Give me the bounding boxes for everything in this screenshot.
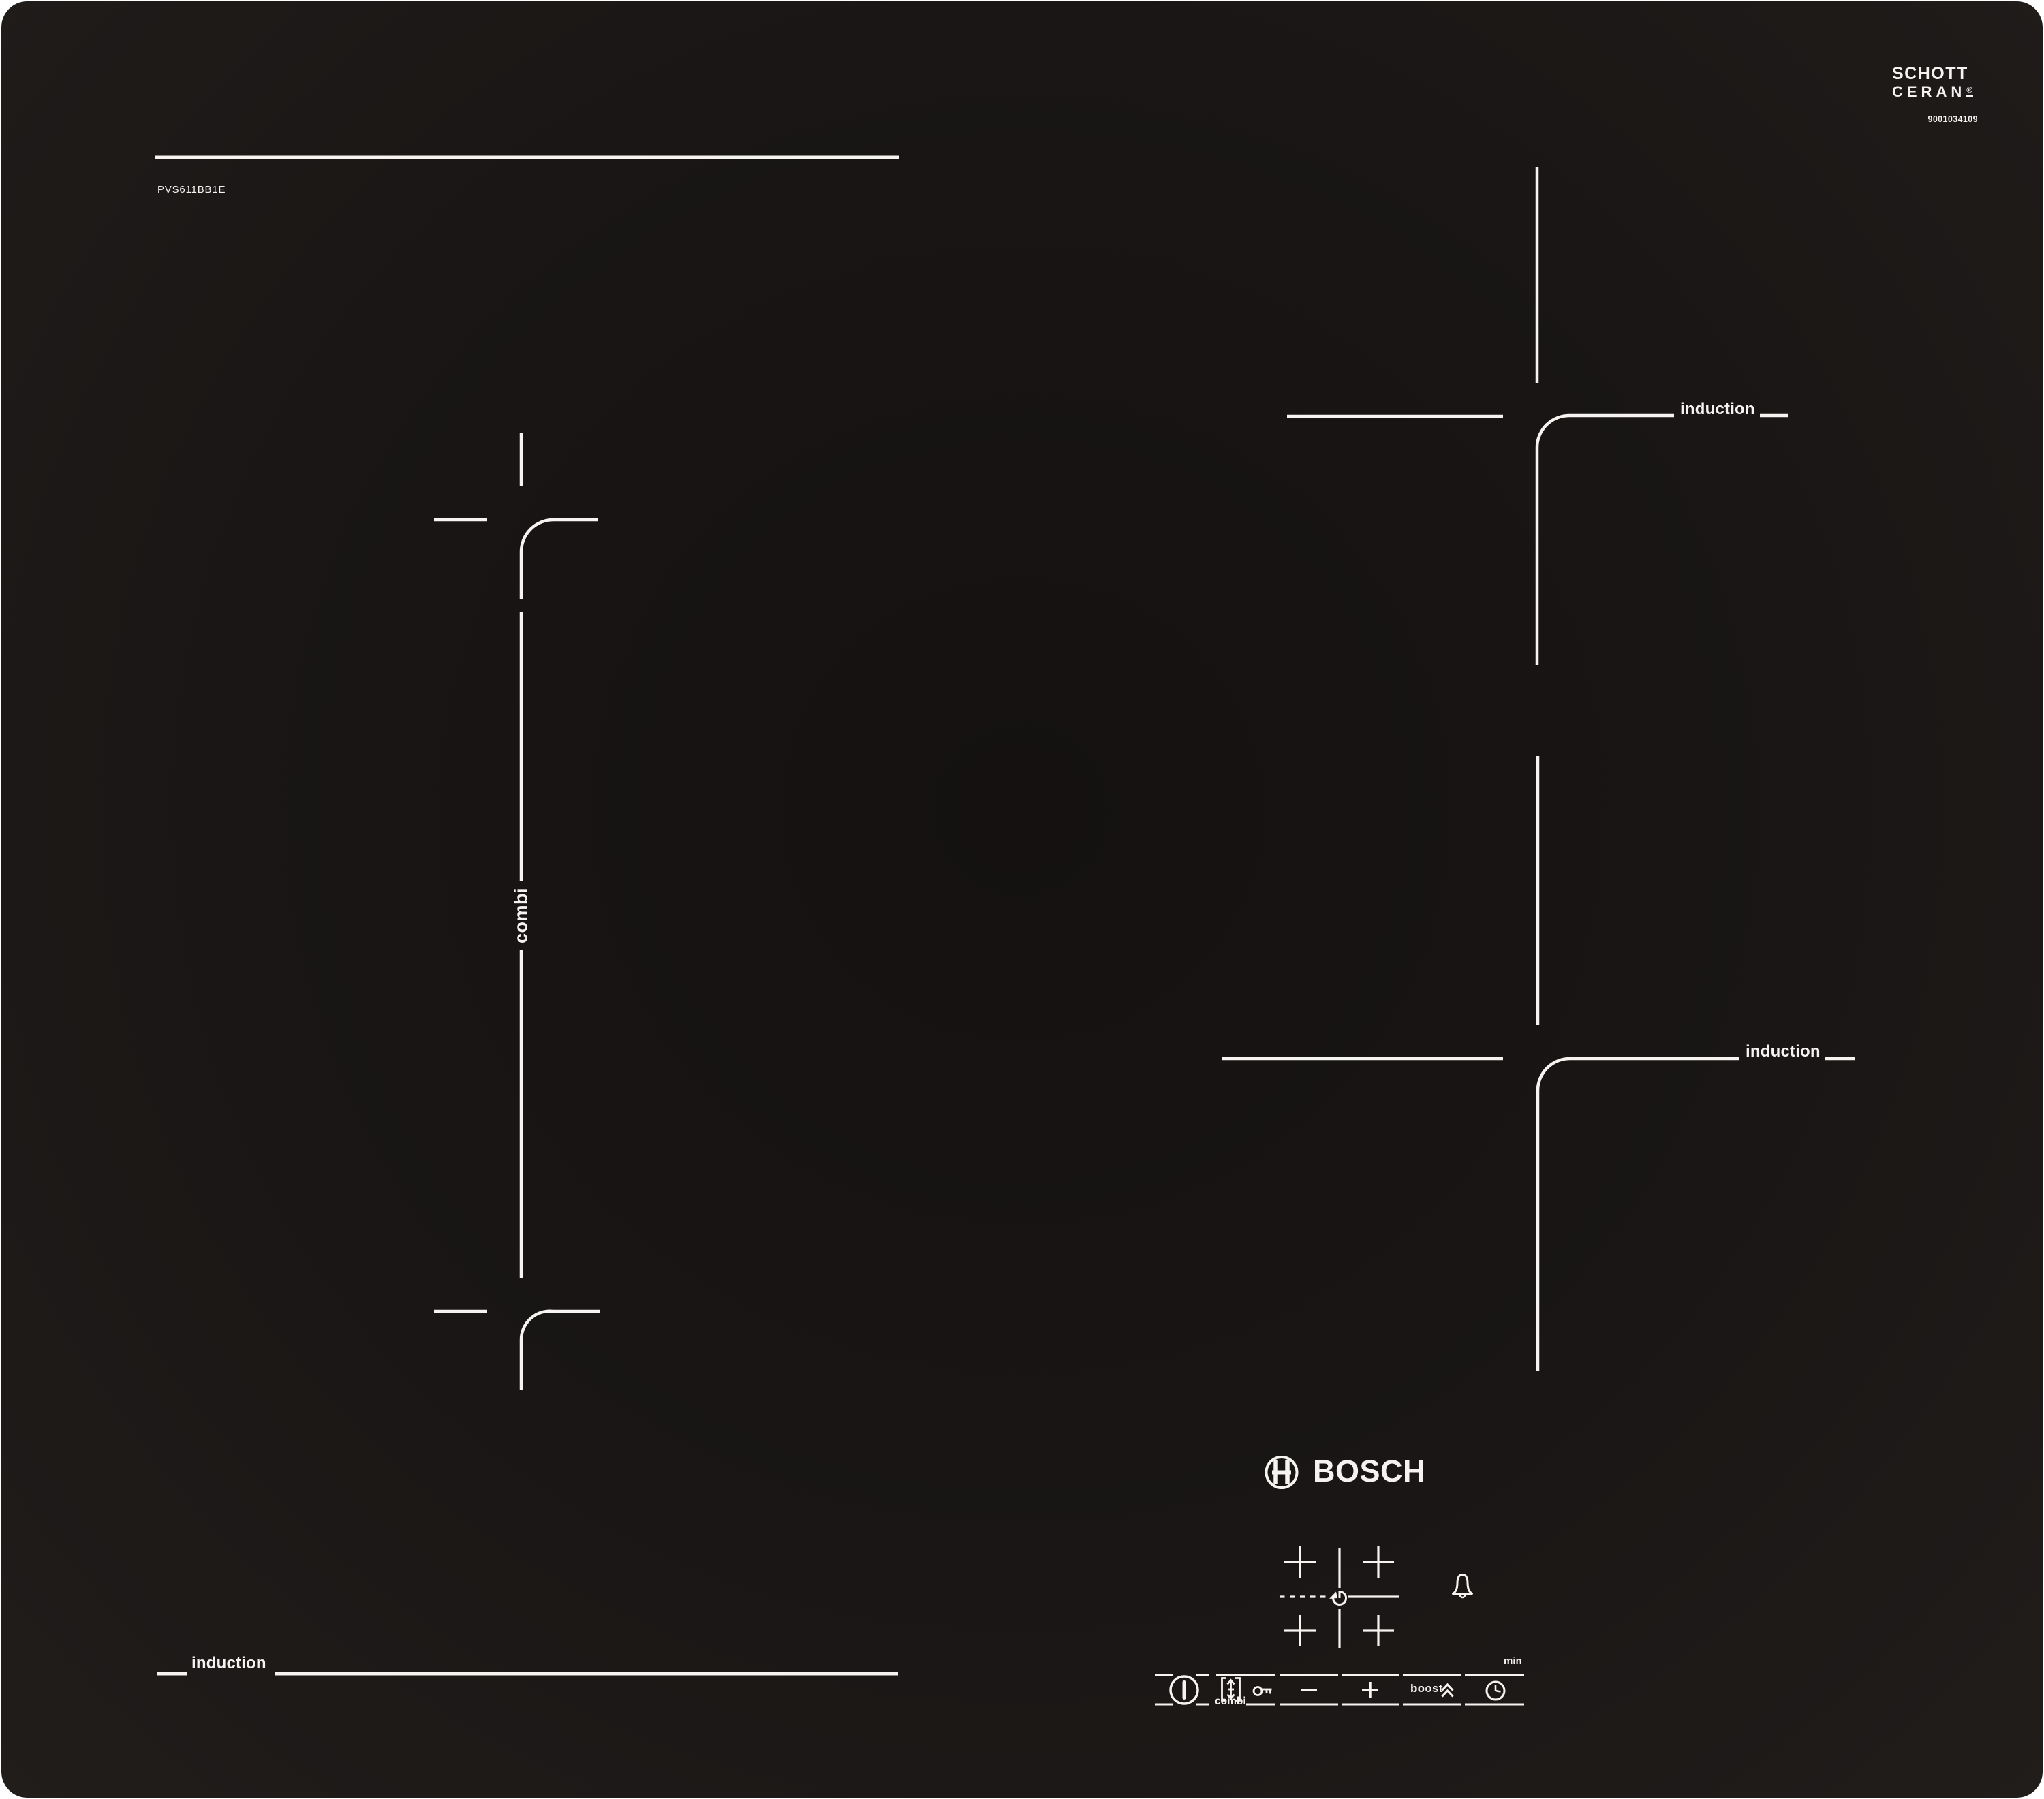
plus-button[interactable] [1362,1682,1378,1698]
rotate-pot-icon [1329,1591,1346,1604]
serial-code: 9001034109 [1892,115,1978,124]
model-number: PVS611BB1E [157,185,226,195]
timer-minutes-label: min [1504,1656,1522,1666]
bell-icon [1453,1575,1472,1598]
schott-wordmark: SCHOTT [1892,65,1978,82]
key-lock-icon [1254,1687,1262,1695]
key-lock-button[interactable] [1254,1687,1272,1695]
timer-button[interactable] [1487,1682,1504,1700]
induction-label-mid-right: induction [1746,1044,1821,1060]
power-button[interactable] [1171,1676,1198,1704]
registered-trademark-mark: ® [1966,86,1973,97]
induction-label-top-right: induction [1680,401,1755,418]
control-strip-borders [1155,1675,1524,1704]
bosch-wordmark: BOSCH [1313,1456,1425,1486]
induction-label-bottom-left: induction [191,1655,266,1672]
induction-zone-mid-right-marking [1222,756,1855,1371]
boost-button[interactable] [1442,1685,1453,1697]
ceran-wordmark: CERAN® [1892,84,1978,101]
combi-zone-label: combi [512,888,531,943]
bosch-logo-icon [1267,1457,1297,1488]
schott-ceran-logo: SCHOTT CERAN® 9001034109 [1892,65,1978,124]
cooktop-line-art [0,0,2044,1799]
boost-button-label[interactable]: boost [1410,1683,1443,1694]
combi-button-label[interactable]: combi [1215,1696,1246,1707]
